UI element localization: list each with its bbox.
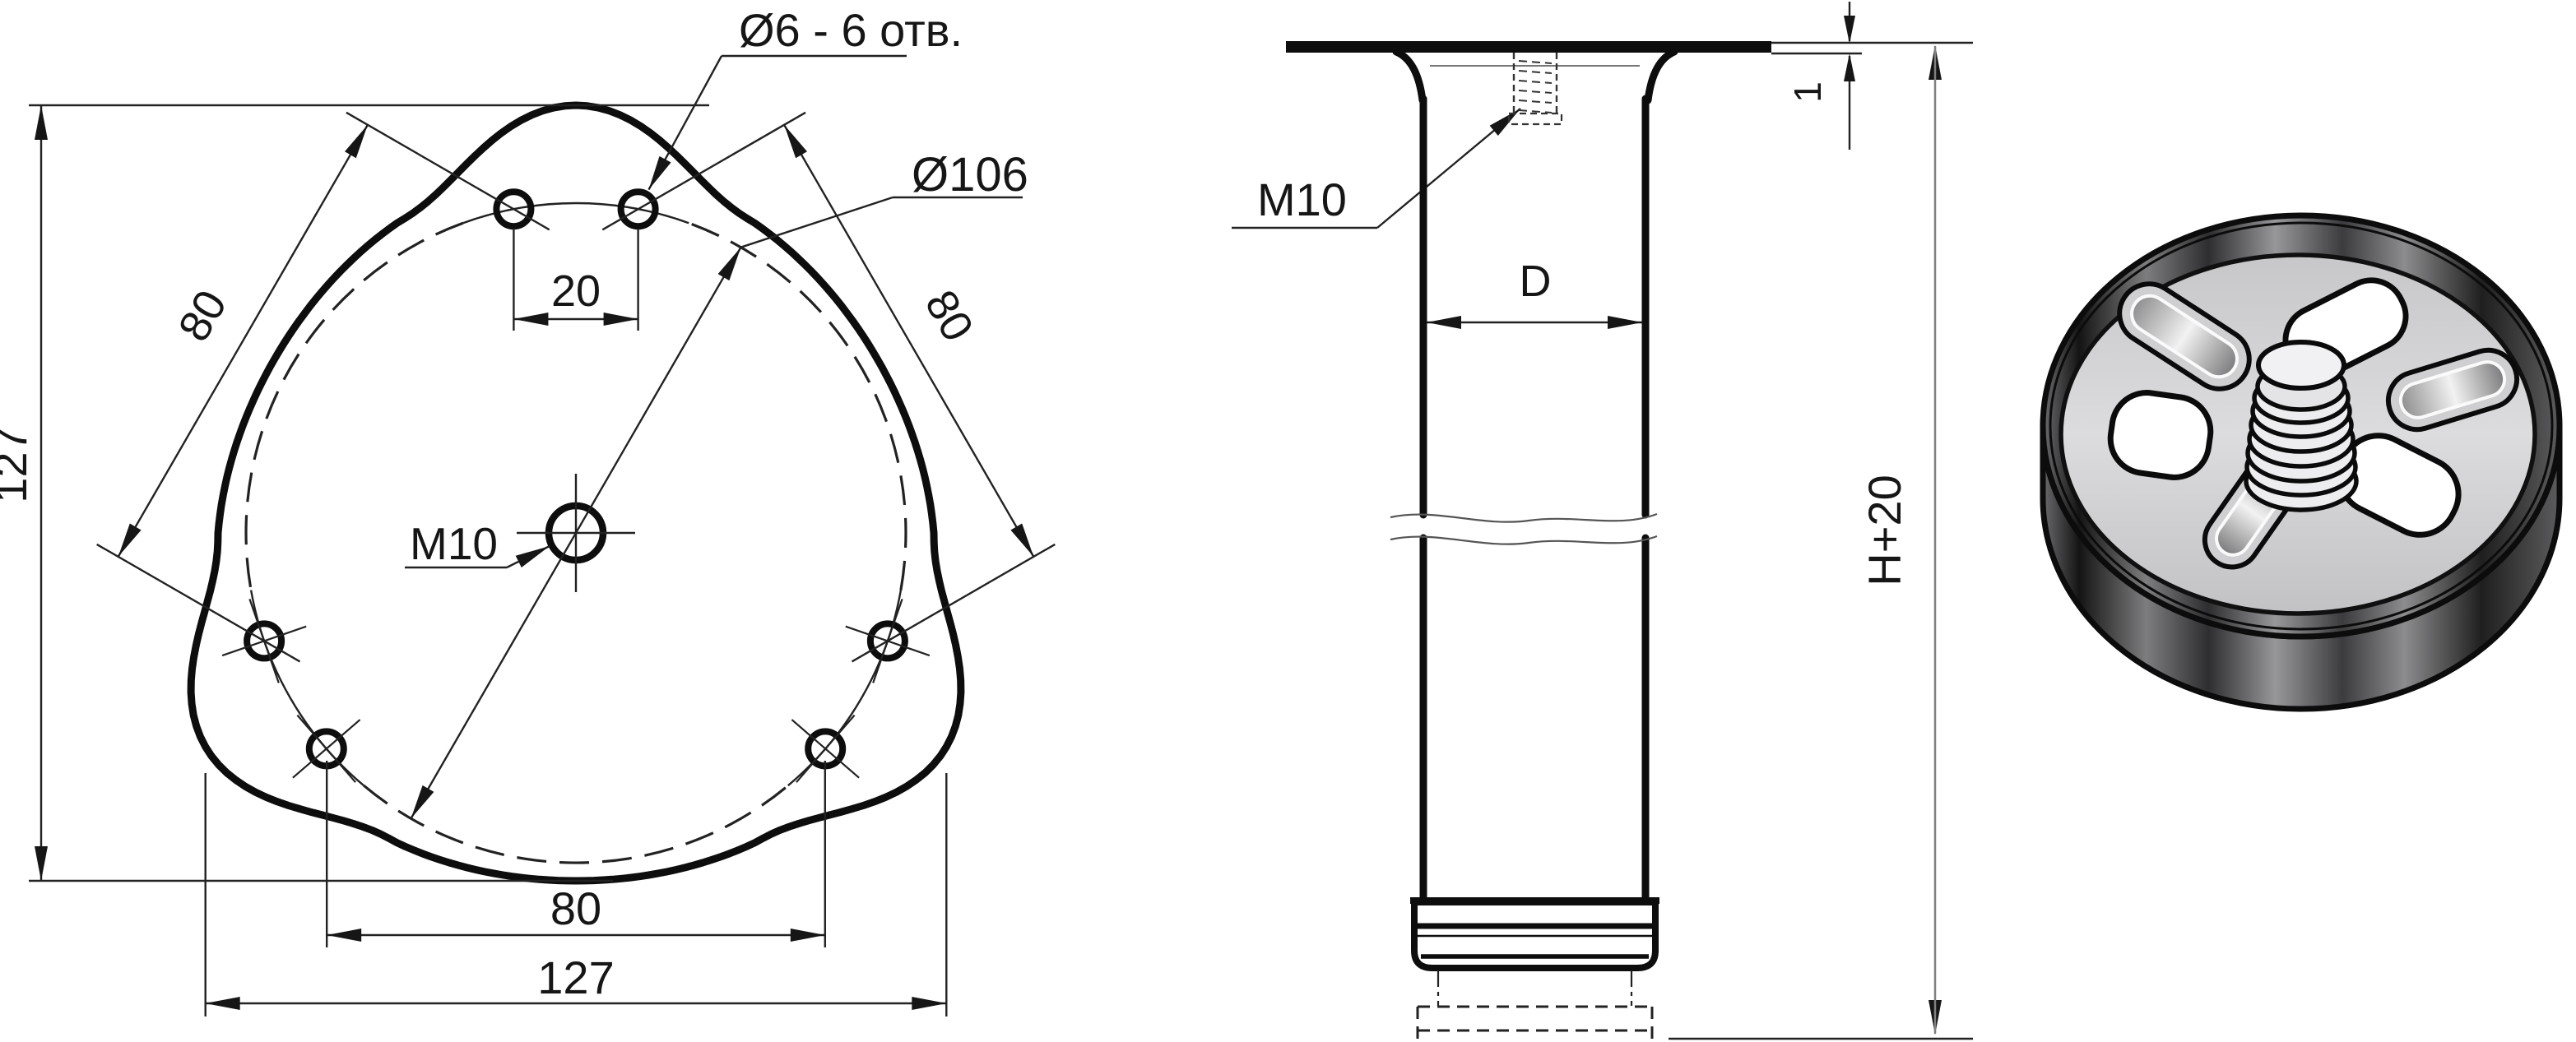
dim-arrow	[327, 929, 361, 942]
dim-arrow	[118, 524, 142, 557]
isometric-render	[2043, 215, 2560, 709]
dim-line	[741, 197, 893, 248]
dim-arrow	[1844, 53, 1855, 81]
flare-right	[1648, 52, 1674, 100]
dim-label-height: 127	[0, 426, 36, 502]
stud-thread-line	[1519, 71, 1552, 73]
dim-label-width: 127	[537, 952, 614, 1003]
iso-stud-cap	[2258, 342, 2344, 388]
stud-thread-line	[1519, 100, 1552, 103]
threaded-stud-hidden	[1509, 53, 1562, 124]
dim-label-thread: M10	[1257, 174, 1347, 225]
dim-label-center-thread: M10	[410, 518, 498, 569]
dim-arrow	[1608, 316, 1642, 329]
flare-left	[1396, 52, 1423, 100]
dim-line	[346, 113, 550, 229]
dim-arrow	[1844, 16, 1855, 44]
dim-label-left-diagonal: 80	[169, 282, 236, 350]
iso-threaded-boss	[2246, 342, 2356, 510]
dim-arrow	[206, 997, 240, 1010]
dim-line	[602, 113, 805, 229]
break-line-upper	[1390, 514, 1657, 522]
dim-arrow	[1010, 524, 1033, 557]
dim-arrow	[784, 125, 807, 158]
foot-extended-hidden	[1418, 1007, 1652, 1041]
plate-edge	[1286, 41, 1771, 53]
stud-thread-line	[1519, 90, 1552, 93]
break-line-lower	[1390, 536, 1657, 544]
dim-label-right-diagonal: 80	[916, 282, 983, 350]
stud-thread-line	[1519, 61, 1552, 63]
dim-line	[118, 125, 368, 557]
side-view-drawing: M10 D H+20 1	[1257, 41, 1935, 1041]
dim-arrow	[1427, 316, 1461, 329]
dim-label-holes: Ø6 - 6 отв.	[739, 4, 963, 56]
dim-arrow	[718, 248, 741, 280]
dim-arrow	[411, 785, 434, 818]
dim-arrow	[912, 997, 946, 1010]
dim-label-diameter: D	[1520, 257, 1552, 306]
dim-arrow	[35, 846, 48, 881]
dim-label-bolt-circle: Ø106	[912, 148, 1028, 201]
dim-label-bottom-spacing: 80	[550, 882, 601, 934]
dim-arrow	[516, 546, 550, 567]
top-view-drawing: Ø6 - 6 отв. Ø106 127 80 80 20 M10 80 127	[0, 2, 1973, 1039]
dim-arrow	[513, 313, 548, 326]
stud-thread-line	[1519, 81, 1552, 83]
iso-hole-left	[2106, 388, 2215, 482]
dim-label-pair-spacing: 20	[551, 266, 601, 316]
dim-arrow	[345, 125, 368, 158]
technical-drawing-sheet: Ø6 - 6 отв. Ø106 127 80 80 20 M10 80 127	[0, 0, 2576, 1042]
stud-thread-line	[1519, 110, 1552, 113]
dim-label-plate-thickness: 1	[1786, 81, 1829, 103]
dim-arrow	[35, 105, 48, 140]
dim-arrow	[604, 313, 638, 326]
dim-arrow	[649, 156, 671, 190]
drawing-svg: Ø6 - 6 отв. Ø106 127 80 80 20 M10 80 127	[0, 0, 2576, 1042]
dim-arrow	[791, 929, 825, 942]
dim-label-leg-height: H+20	[1859, 475, 1910, 586]
